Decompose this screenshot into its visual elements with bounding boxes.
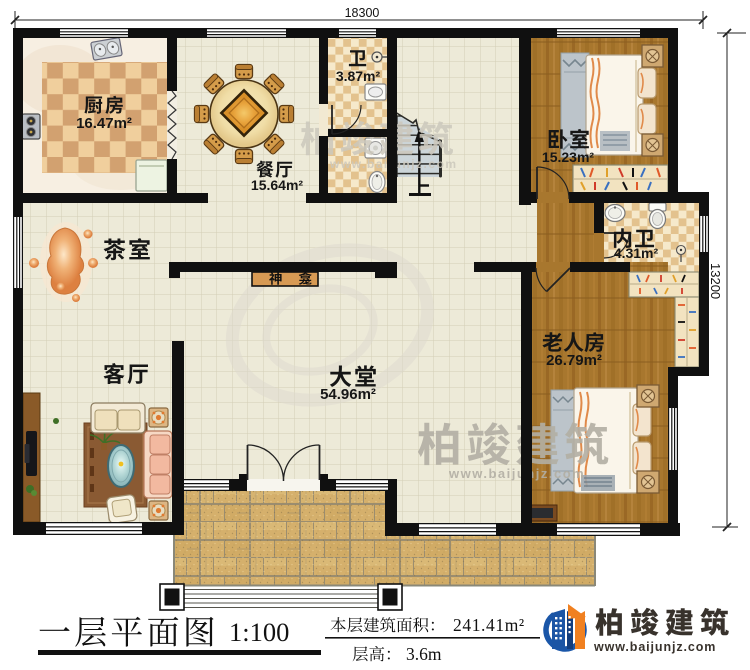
svg-text:15.23m²: 15.23m² bbox=[542, 149, 594, 165]
svg-text:18300: 18300 bbox=[345, 6, 380, 20]
svg-text:www.baijunjz.com: www.baijunjz.com bbox=[593, 640, 716, 654]
svg-text:241.41m²: 241.41m² bbox=[453, 615, 525, 635]
svg-text:54.96m²: 54.96m² bbox=[320, 386, 376, 403]
svg-text:16.47m²: 16.47m² bbox=[76, 115, 132, 132]
svg-text:3.6m: 3.6m bbox=[406, 644, 442, 664]
svg-text:4.31m²: 4.31m² bbox=[614, 245, 659, 261]
svg-text:3.87m²: 3.87m² bbox=[336, 68, 381, 84]
svg-text:15.64m²: 15.64m² bbox=[251, 177, 303, 193]
svg-text:www.baijunjz.com: www.baijunjz.com bbox=[448, 466, 585, 481]
svg-text:13200: 13200 bbox=[708, 263, 723, 299]
svg-text:26.79m²: 26.79m² bbox=[546, 352, 602, 369]
svg-text:1:100: 1:100 bbox=[229, 617, 289, 647]
